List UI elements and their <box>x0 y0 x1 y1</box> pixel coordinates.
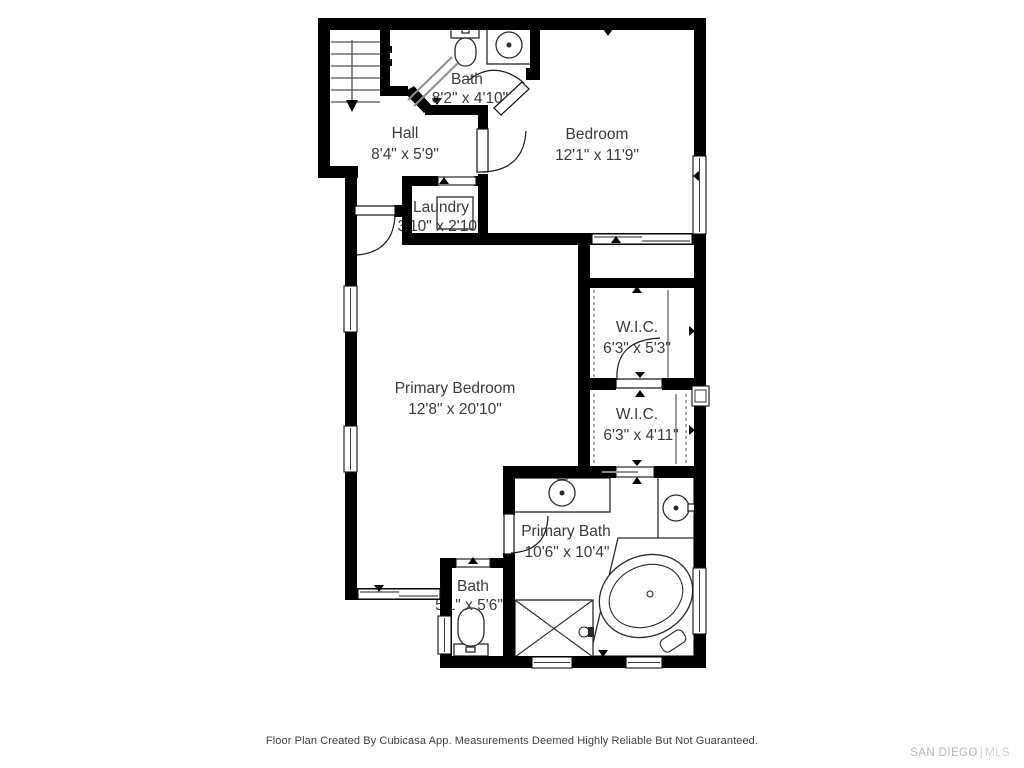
room-dims: 6'3" x 4'11" <box>603 427 678 444</box>
room-dims: 12'8" x 20'10" <box>408 401 502 418</box>
watermark-secondary: MLS <box>985 747 1010 759</box>
room-name: Bedroom <box>566 126 629 143</box>
arrow-icon <box>603 29 613 36</box>
floor-plan-page: 3'10" x 2'10" 5'1" x 5'6" <box>0 0 1024 768</box>
door-leaf <box>477 129 488 172</box>
lower-bath-fixtures <box>454 608 488 656</box>
door-leaf <box>616 379 662 388</box>
room-name: Primary Bath <box>521 523 611 540</box>
door-leaf <box>355 206 395 215</box>
stair-treads <box>331 42 380 102</box>
door-swing-arc <box>357 216 395 255</box>
disclaimer-text: Floor Plan Created By Cubicasa App. Meas… <box>0 735 1024 747</box>
arrow-icon <box>635 390 645 397</box>
room-name: Bath <box>457 578 489 595</box>
mls-watermark: SAN DIEGO|MLS <box>910 747 1010 759</box>
sink-drain-icon <box>507 43 512 48</box>
door-leaf <box>504 514 514 554</box>
toilet-button-icon <box>466 647 475 652</box>
floor-plan-drawing: 3'10" x 2'10" 5'1" x 5'6" <box>0 0 1024 768</box>
room-name: Hall <box>392 125 419 142</box>
room-dims: 6'3" x 5'3" <box>603 340 671 357</box>
room-name: W.I.C. <box>616 406 658 423</box>
stair-down-arrow-icon <box>346 100 358 112</box>
sliding-door <box>592 234 692 244</box>
door-swing-arc <box>483 131 526 172</box>
sink-drain-icon <box>560 491 565 496</box>
arrow-icon <box>632 460 642 466</box>
room-name: W.I.C. <box>616 319 658 336</box>
room-name: Bath <box>451 71 483 88</box>
room-dims: 12'1" x 11'9" <box>555 147 639 164</box>
sliding-door <box>358 589 440 599</box>
sink-drain-icon <box>674 506 679 511</box>
toilet-bowl-icon <box>455 38 476 66</box>
room-dims: 10'6" x 10'4" <box>524 544 609 561</box>
room-labels: Bath 8'2" x 4'10" Hall 8'4" x 5'9" Bedro… <box>371 71 679 595</box>
watermark-separator: | <box>980 747 983 759</box>
primary-bath-fixtures <box>510 473 706 657</box>
room-name: Primary Bedroom <box>395 380 516 397</box>
arrow-icon <box>635 372 645 378</box>
room-name: Laundry <box>413 199 469 216</box>
shower-handle-icon <box>588 627 594 637</box>
room-dims: 8'2" x 4'10" <box>432 90 508 107</box>
watermark-primary: SAN DIEGO <box>910 747 978 759</box>
room-dims: 8'4" x 5'9" <box>371 146 439 163</box>
arrow-icon <box>632 477 642 484</box>
